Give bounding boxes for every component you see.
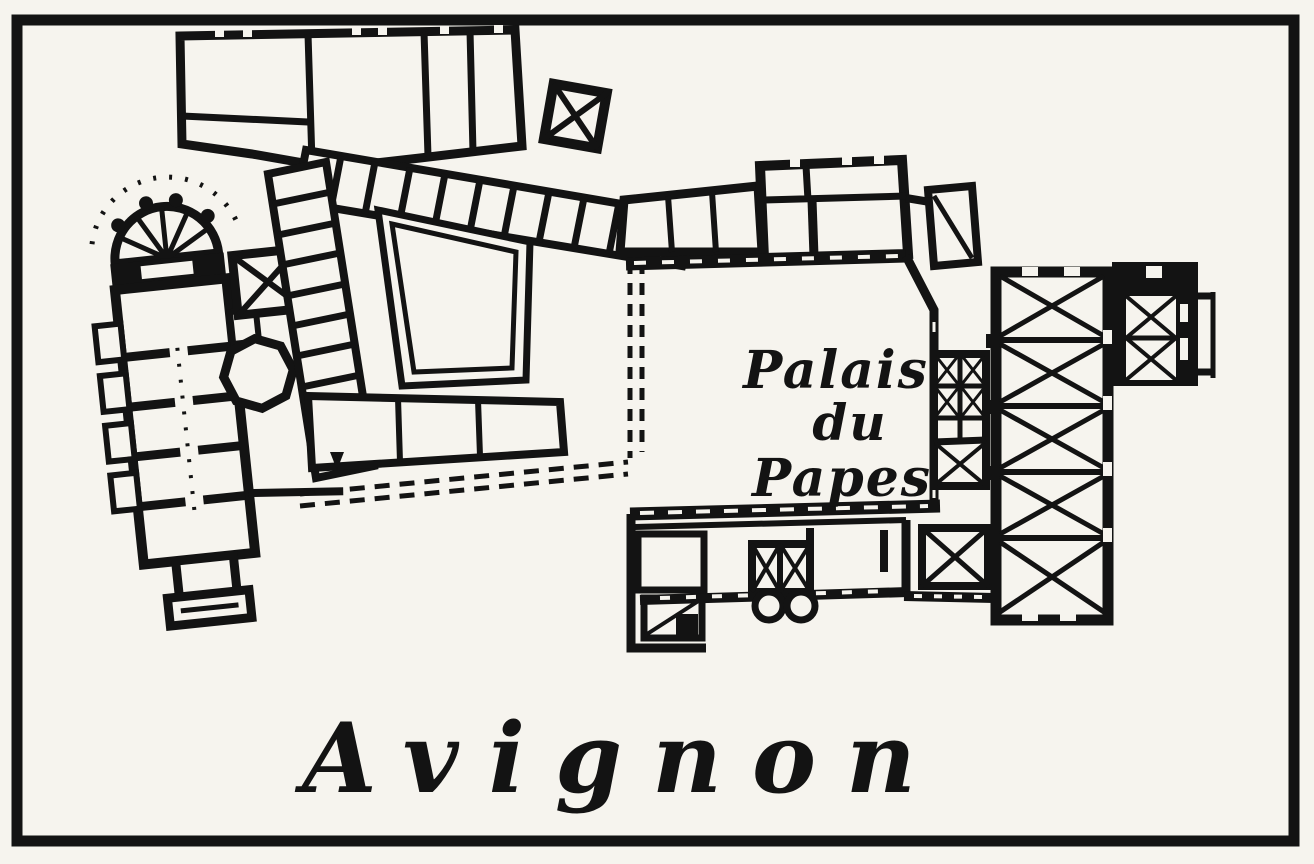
north-cross-tower [544, 84, 607, 149]
courtyard-west-wall-dashed [630, 262, 642, 458]
north-range [620, 155, 978, 266]
plate-avignon-floor-plan: Palais du Papes Avignon [0, 0, 1314, 864]
round-tower [755, 592, 783, 620]
label-palais: Palais [741, 340, 929, 401]
great-chapel [986, 267, 1112, 621]
north-wing [760, 160, 908, 258]
label-papes: Papes [750, 448, 932, 509]
octagonal-tower [220, 335, 297, 412]
northeast-annex-tower [1112, 262, 1214, 386]
trapezoid-courtyard [378, 210, 530, 386]
west-range [300, 396, 628, 506]
courtyard-label: Palais du Papes [741, 340, 932, 509]
plate-caption: Avignon [294, 702, 946, 815]
round-tower [787, 592, 815, 620]
floor-plan-drawing: Palais du Papes Avignon [0, 0, 1314, 864]
label-du: du [812, 393, 887, 452]
